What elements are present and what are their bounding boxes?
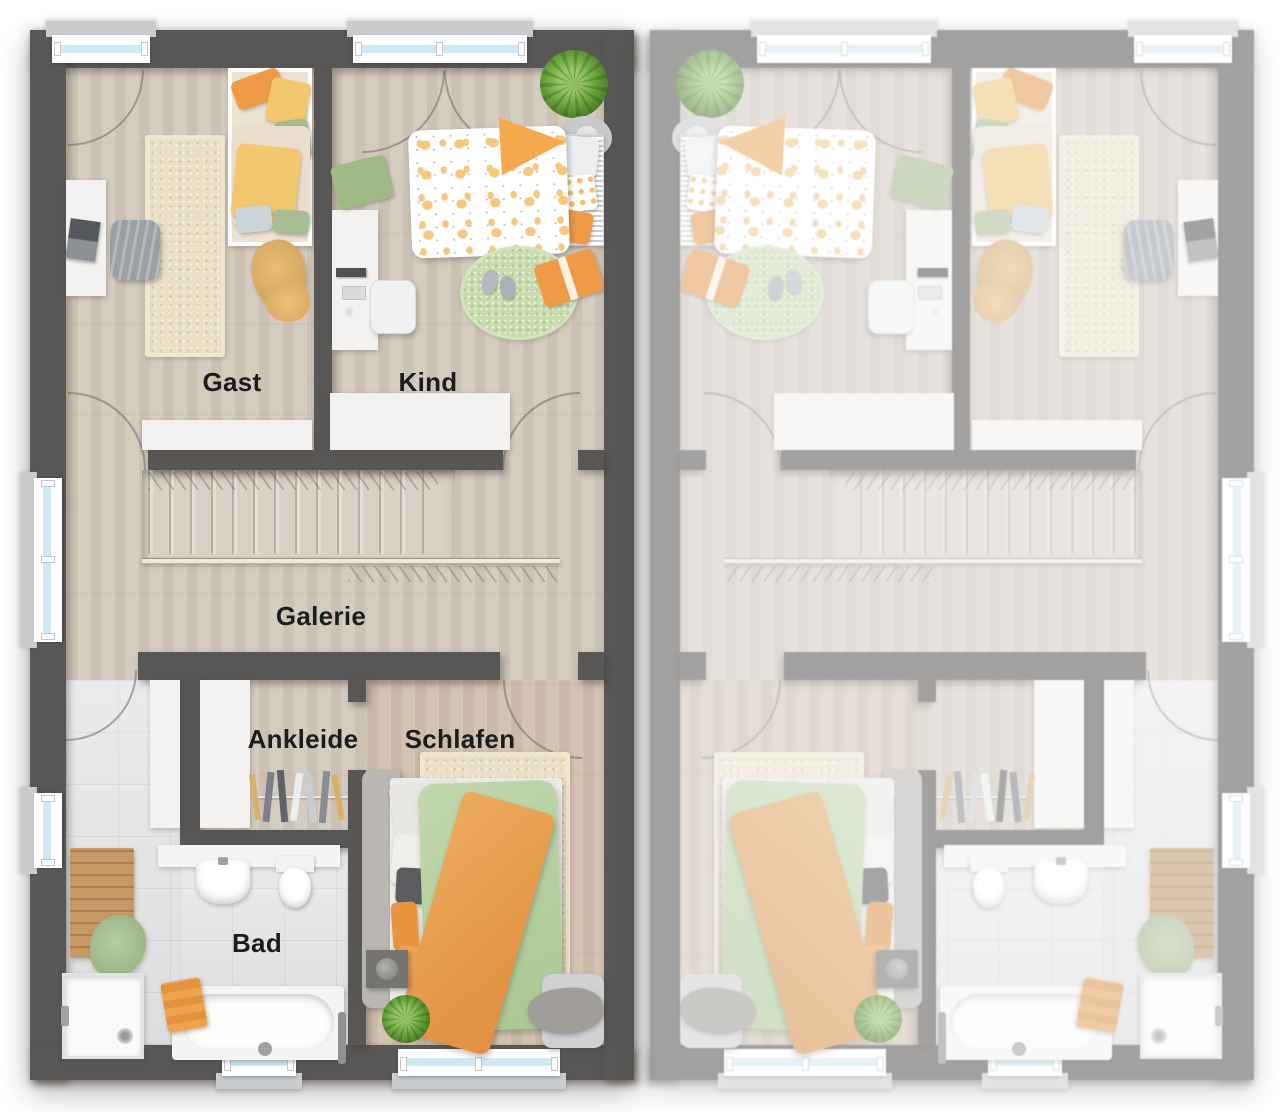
- wall-gast-kind: [952, 68, 970, 450]
- hanger: [331, 774, 345, 820]
- window-handle: [141, 42, 148, 56]
- window-handle: [1136, 42, 1143, 56]
- plant-kind: [676, 50, 744, 118]
- plant-kind: [540, 50, 608, 118]
- sink: [1034, 860, 1088, 904]
- shower-faucet: [1215, 1006, 1223, 1026]
- shower-drain: [1151, 1028, 1167, 1044]
- clothes-rail-hangers: [934, 770, 1034, 826]
- blanket-tan-floor-2: [266, 282, 310, 322]
- pillow-ribbon: [705, 256, 726, 300]
- speaker-knob: [376, 958, 398, 980]
- window-handle: [922, 42, 929, 56]
- towel-rail: [338, 1012, 346, 1064]
- clothes-rail-hangers: [250, 770, 350, 826]
- hanger: [319, 771, 331, 823]
- hanger: [1009, 772, 1021, 822]
- room-label-kind: Kind: [358, 369, 498, 395]
- hanger: [1023, 774, 1035, 820]
- hanger: [290, 773, 304, 822]
- bathtub-faucet: [258, 1042, 272, 1056]
- window-handle: [1229, 795, 1243, 802]
- pillow-lightblue: [235, 204, 274, 234]
- keyboard: [918, 286, 942, 300]
- shower-tray: [1140, 973, 1222, 1059]
- window-handle: [41, 633, 55, 640]
- toilet-bowl: [973, 868, 1005, 908]
- unit-right-mirrored-faded: Gast Kind Galerie Ankleide Schlafen Bad: [650, 30, 1254, 1080]
- window-left-galerie: [1218, 478, 1254, 642]
- room-label-schlafen: Schlafen: [390, 726, 530, 752]
- wall-ankleide-schlafen-top: [348, 680, 366, 702]
- wall-galerie-top-a: [781, 450, 1136, 470]
- monitor: [918, 268, 948, 277]
- shower-tray: [62, 973, 144, 1059]
- towel-orange: [160, 977, 208, 1033]
- window-handle: [802, 1057, 809, 1071]
- floorplan-canvas: Gast Kind Galerie Ankleide Schlafen Bad: [0, 0, 1280, 1112]
- wardrobe-ankleide: [1034, 680, 1084, 828]
- wall-galerie-bottom-a: [138, 652, 500, 680]
- stair-railing: [142, 558, 560, 564]
- wall-galerie-top-a: [148, 450, 503, 470]
- wall-galerie-bottom-a: [784, 652, 1146, 680]
- window-handle: [41, 859, 55, 866]
- window-glass: [1233, 798, 1241, 863]
- laptop: [65, 218, 100, 262]
- window-handle: [41, 556, 55, 563]
- cushion-orange-1: [390, 901, 419, 951]
- pillow-ribbon: [557, 256, 578, 300]
- hanger: [277, 770, 289, 822]
- keyboard: [342, 286, 366, 300]
- hanger: [262, 772, 274, 822]
- mouse: [346, 307, 353, 317]
- stair-hatch-bottom: [348, 566, 558, 582]
- hanger: [996, 770, 1008, 822]
- mouse: [931, 307, 938, 317]
- blanket-tan-floor-2: [974, 282, 1018, 322]
- bathtub-faucet: [1012, 1042, 1026, 1056]
- cabinet-bad-tall: [150, 680, 180, 828]
- nightstand: [366, 950, 408, 988]
- wall-galerie-bottom-b: [578, 652, 604, 680]
- chair-gast: [1124, 220, 1174, 280]
- hanger: [249, 774, 261, 820]
- window-left-bad: [1218, 793, 1254, 868]
- pillow-lightblue: [1011, 204, 1050, 234]
- window-handle: [759, 42, 766, 56]
- window-left-galerie: [30, 478, 66, 642]
- wall-party: [604, 30, 634, 1080]
- unit-left: Gast Kind Galerie Ankleide Schlafen Bad: [30, 30, 634, 1080]
- window-handle: [355, 42, 362, 56]
- speaker-knob: [886, 958, 908, 980]
- wall-ankleide-schlafen-top: [918, 680, 936, 702]
- wall-galerie-top-b: [680, 450, 706, 470]
- window-handle: [877, 1057, 884, 1071]
- window-glass: [1139, 45, 1227, 53]
- stair-hatch-bottom: [726, 566, 936, 582]
- wall-galerie-top-b: [578, 450, 604, 470]
- wall-galerie-bottom-b: [680, 652, 706, 680]
- desk-kind: [906, 210, 952, 350]
- hanger: [967, 772, 980, 822]
- pillow-green-2: [272, 209, 310, 235]
- window-top-kind: [353, 30, 527, 68]
- window-top-kind: [757, 30, 931, 68]
- stair-railing: [724, 558, 1142, 564]
- sink-tap: [1056, 857, 1066, 865]
- window-glass: [43, 798, 51, 863]
- plant-schlafen: [382, 995, 430, 1043]
- room-label-gast: Gast: [162, 369, 302, 395]
- room-label-bad: Bad: [187, 930, 327, 956]
- window-handle: [1229, 859, 1243, 866]
- stair-hatch-top: [148, 472, 438, 490]
- sink: [196, 860, 250, 904]
- laptop: [1183, 218, 1218, 262]
- towel-orange: [1076, 977, 1124, 1033]
- hanger: [939, 774, 953, 820]
- cushion-orange-1: [864, 901, 893, 951]
- chair-kind: [868, 280, 914, 334]
- toilet-bowl: [279, 868, 311, 908]
- window-handle: [54, 42, 61, 56]
- wall-bad-ankleide: [1084, 680, 1104, 830]
- hanger: [304, 772, 317, 822]
- window-glass: [57, 45, 145, 53]
- window-handle: [1229, 633, 1243, 640]
- pillow-green-2: [974, 209, 1012, 235]
- sideboard-kind: [330, 393, 510, 450]
- window-handle: [841, 42, 848, 56]
- towel-rail: [938, 1012, 946, 1064]
- chair-kind: [370, 280, 416, 334]
- window-handle: [436, 42, 443, 56]
- shower-drain: [117, 1028, 133, 1044]
- window-handle: [1229, 480, 1243, 487]
- window-handle: [400, 1057, 407, 1071]
- plant-schlafen: [854, 995, 902, 1043]
- sideboard-gast: [972, 420, 1142, 450]
- window-handle: [475, 1057, 482, 1071]
- sink-tap: [218, 857, 228, 865]
- cabinet-bad-tall: [1104, 680, 1134, 828]
- window-handle: [1223, 42, 1230, 56]
- nightstand: [876, 950, 918, 988]
- window-handle: [1229, 556, 1243, 563]
- window-left-bad: [30, 793, 66, 868]
- sideboard-gast: [142, 420, 312, 450]
- chair-gast: [110, 220, 160, 280]
- room-label-galerie: Galerie: [251, 603, 391, 629]
- room-label-ankleide: Ankleide: [233, 726, 373, 752]
- window-handle: [726, 1057, 733, 1071]
- hanger: [981, 773, 995, 822]
- sideboard-kind: [774, 393, 954, 450]
- wardrobe-ankleide: [200, 680, 250, 828]
- stair-hatch-top: [846, 472, 1136, 490]
- window-handle: [41, 480, 55, 487]
- window-handle: [551, 1057, 558, 1071]
- wall-bad-ankleide: [180, 680, 200, 830]
- window-handle: [41, 795, 55, 802]
- window-top-gast: [1134, 30, 1232, 68]
- shower-faucet: [61, 1006, 69, 1026]
- wall-party: [650, 30, 680, 1080]
- window-top-gast: [52, 30, 150, 68]
- window-handle: [518, 42, 525, 56]
- hanger: [954, 771, 966, 823]
- monitor: [336, 268, 366, 277]
